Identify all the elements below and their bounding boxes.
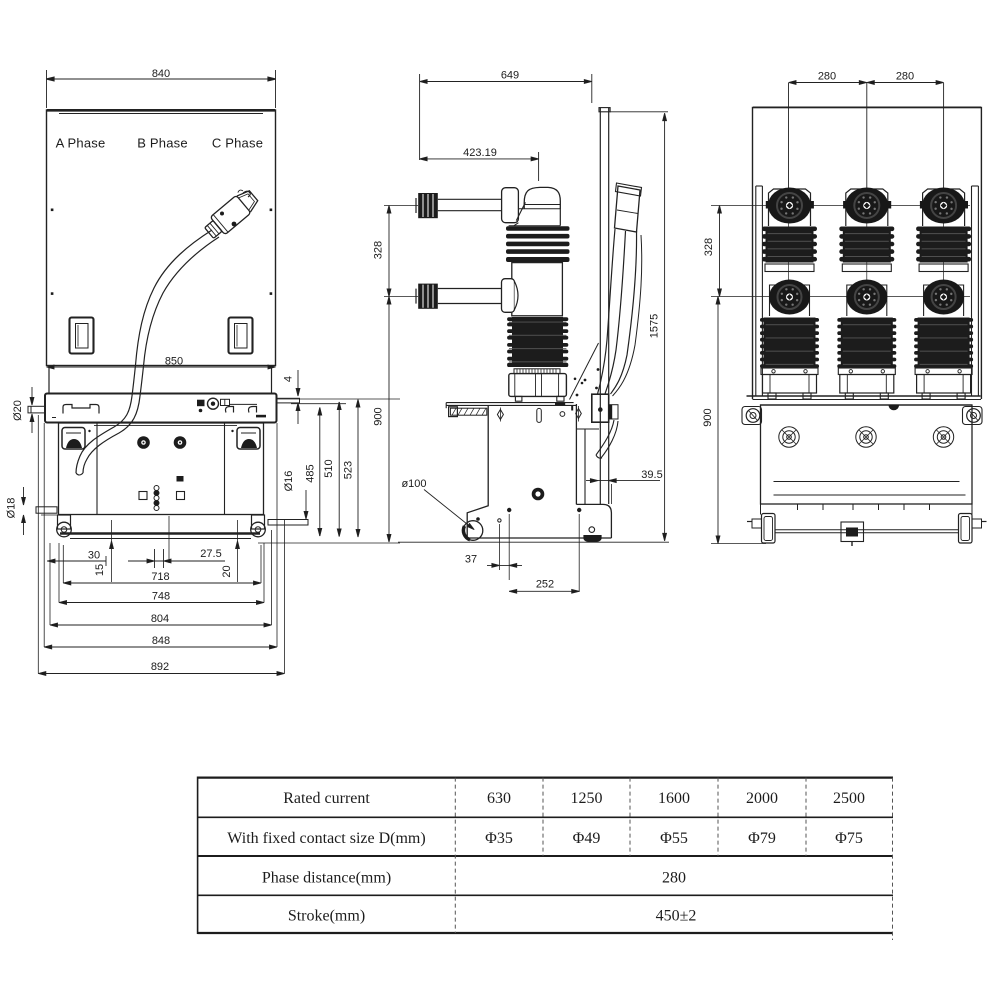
svg-text:Φ49: Φ49 <box>573 830 601 847</box>
svg-text:37: 37 <box>465 554 477 566</box>
svg-text:Ø16: Ø16 <box>283 471 295 492</box>
svg-text:280: 280 <box>818 71 836 83</box>
svg-text:Φ35: Φ35 <box>485 830 513 847</box>
svg-text:Ø20: Ø20 <box>12 400 24 421</box>
svg-text:748: 748 <box>152 591 170 603</box>
svg-text:Stroke(mm): Stroke(mm) <box>288 908 365 925</box>
svg-text:B Phase: B Phase <box>137 136 188 151</box>
svg-text:30: 30 <box>88 550 100 562</box>
svg-text:630: 630 <box>487 790 511 807</box>
svg-text:649: 649 <box>501 70 519 82</box>
svg-text:C Phase: C Phase <box>212 136 263 151</box>
svg-text:804: 804 <box>151 613 169 625</box>
svg-text:Rated current: Rated current <box>283 790 370 807</box>
svg-text:Ø18: Ø18 <box>6 498 18 519</box>
svg-text:Phase distance(mm): Phase distance(mm) <box>262 870 391 887</box>
svg-text:Φ55: Φ55 <box>660 830 688 847</box>
svg-text:328: 328 <box>703 238 715 256</box>
svg-text:450±2: 450±2 <box>656 908 697 925</box>
svg-text:280: 280 <box>896 71 914 83</box>
svg-text:1250: 1250 <box>571 790 603 807</box>
svg-text:2500: 2500 <box>833 790 865 807</box>
svg-text:A Phase: A Phase <box>56 136 106 151</box>
svg-text:718: 718 <box>151 571 169 583</box>
svg-text:485: 485 <box>305 464 317 482</box>
svg-text:900: 900 <box>702 408 714 426</box>
svg-text:892: 892 <box>151 661 169 673</box>
svg-text:2000: 2000 <box>746 790 778 807</box>
svg-text:With fixed contact size D(mm): With fixed contact size D(mm) <box>227 830 425 847</box>
svg-text:15: 15 <box>94 564 106 576</box>
svg-text:840: 840 <box>152 68 170 80</box>
svg-text:4: 4 <box>283 376 295 382</box>
svg-text:1600: 1600 <box>658 790 690 807</box>
svg-text:523: 523 <box>343 461 355 479</box>
svg-text:27.5: 27.5 <box>200 548 221 560</box>
svg-text:39.5: 39.5 <box>641 469 662 481</box>
svg-text:ø100: ø100 <box>401 478 426 490</box>
svg-text:280: 280 <box>662 870 686 887</box>
svg-text:423.19: 423.19 <box>463 147 497 159</box>
svg-text:20: 20 <box>221 565 233 577</box>
svg-text:328: 328 <box>373 241 385 259</box>
svg-text:900: 900 <box>373 407 385 425</box>
svg-text:Φ79: Φ79 <box>748 830 776 847</box>
svg-text:510: 510 <box>323 459 335 477</box>
svg-text:252: 252 <box>536 579 554 591</box>
svg-text:1575: 1575 <box>649 314 661 338</box>
svg-text:Φ75: Φ75 <box>835 830 863 847</box>
svg-text:848: 848 <box>152 635 170 647</box>
svg-text:850: 850 <box>165 356 183 368</box>
